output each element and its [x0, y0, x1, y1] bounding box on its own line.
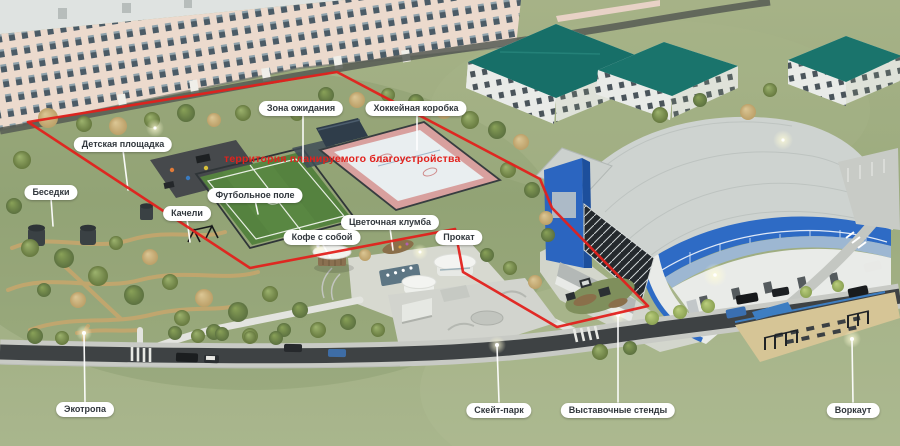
callout-ekotropa: Экотропа [56, 402, 114, 417]
callout-futbolnoe-pole: Футбольное поле [207, 188, 302, 203]
callout-vystavochnye-stendy: Выставочные стенды [561, 403, 675, 418]
callout-detskaya-ploshchadka: Детская площадка [74, 137, 172, 152]
callout-hokkeynaya-korobka: Хоккейная коробка [365, 101, 466, 116]
territory-label: территория планируемого благоустройства [224, 153, 461, 165]
callout-vorkaut: Воркаут [827, 403, 880, 418]
callout-kofe-s-soboy: Кофе с собой [284, 230, 361, 245]
callout-besedki: Беседки [24, 185, 77, 200]
callout-zona-ozhidaniya: Зона ожидания [259, 101, 343, 116]
callout-prokat: Прокат [435, 230, 482, 245]
callout-kacheli: Качели [163, 206, 211, 221]
site-plan-render [0, 0, 900, 446]
site-plan-screenshot: Зона ожидания Хоккейная коробка Детская … [0, 0, 900, 446]
callout-skeyt-park: Скейт-парк [466, 403, 531, 418]
callout-tsvetochnaya-klumba: Цветочная клумба [341, 215, 439, 230]
